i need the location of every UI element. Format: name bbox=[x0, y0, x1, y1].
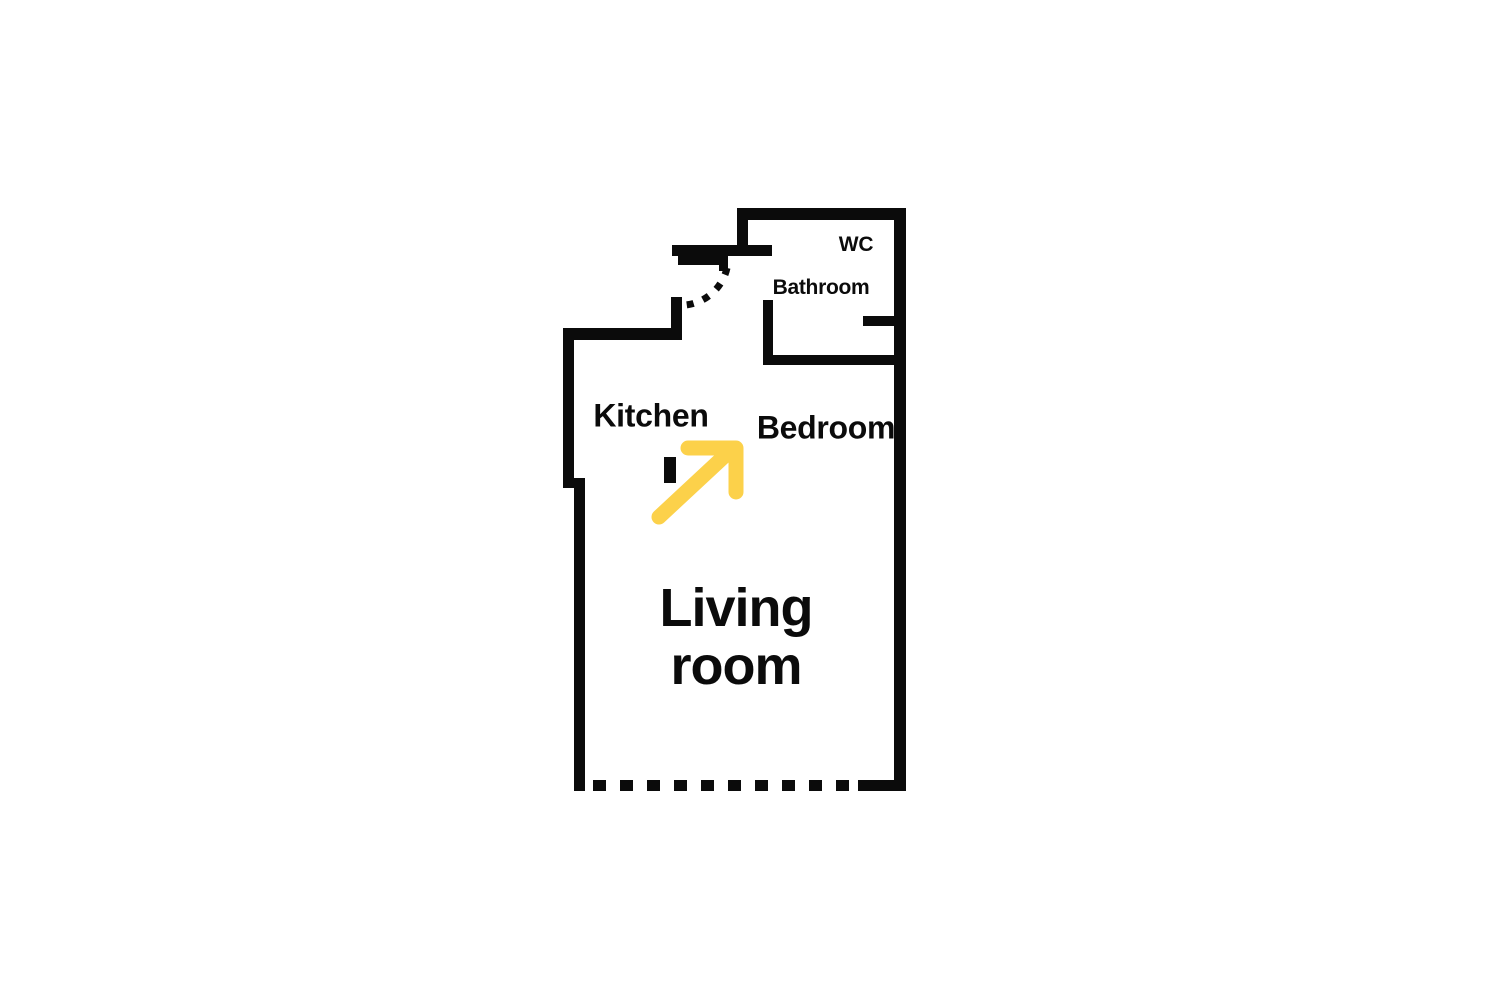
floor-plan-drawing bbox=[0, 0, 1500, 1000]
living-room-label-line2: room bbox=[660, 637, 813, 695]
room-label-bedroom: Bedroom bbox=[757, 410, 895, 447]
dashed-walls bbox=[593, 268, 858, 786]
kitchen-fixture-bar bbox=[664, 457, 676, 483]
living-room-label-line1: Living bbox=[660, 579, 813, 637]
entrance-door-swing-arc bbox=[686, 268, 727, 305]
wall-left-upper bbox=[563, 328, 574, 488]
wall-wc-stub bbox=[863, 316, 906, 326]
wall-entry-top bbox=[672, 245, 772, 256]
wall-bathroom-bottom bbox=[763, 355, 906, 365]
wall-left-lower bbox=[574, 478, 585, 791]
floor-plan: WC Bathroom Kitchen Bedroom Living room bbox=[0, 0, 1500, 1000]
wall-kitchen-top bbox=[563, 328, 682, 340]
room-label-living-room: Living room bbox=[660, 579, 813, 695]
room-label-bathroom: Bathroom bbox=[773, 276, 870, 300]
wall-bottom-solid bbox=[858, 780, 906, 791]
room-label-kitchen: Kitchen bbox=[593, 398, 708, 435]
room-label-wc: WC bbox=[839, 233, 873, 257]
wall-top bbox=[737, 208, 906, 220]
wall-right bbox=[894, 208, 906, 791]
